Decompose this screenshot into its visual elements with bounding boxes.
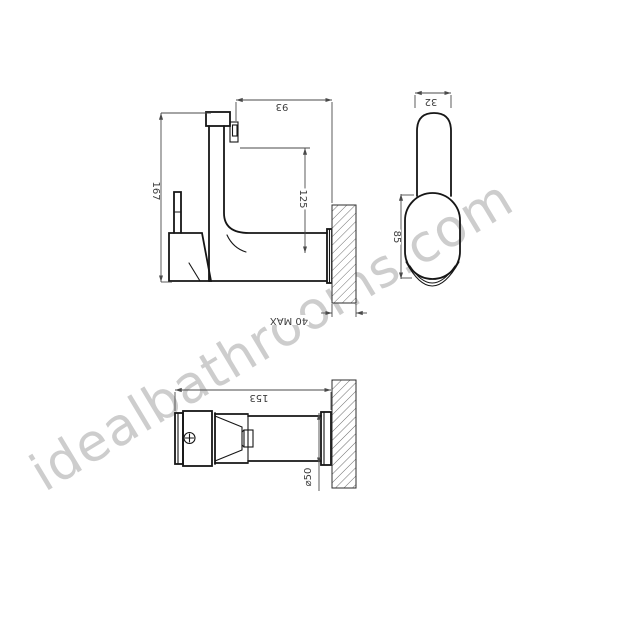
plan-view-faucet-outline — [175, 411, 331, 466]
dim-max-wall-thickness: 40 MAX — [269, 315, 309, 325]
wall-section-hatch-plan — [332, 380, 356, 488]
dim-spout-projection: 93 — [275, 101, 290, 111]
handle-end-cap — [175, 413, 183, 464]
dim-top-to-spout-axis: 125 — [297, 188, 307, 209]
dim-overall-height: 167 — [150, 180, 160, 201]
front-view-dimension-lines — [401, 93, 451, 279]
technical-drawing-canvas: idealbathrooms.com — [0, 0, 640, 640]
wall-section-hatch — [332, 205, 356, 303]
fixing-screw — [184, 433, 195, 444]
dim-overall-length: 153 — [248, 392, 269, 402]
front-view — [401, 93, 460, 286]
handle-front — [417, 113, 451, 196]
dim-body-height: 85 — [391, 230, 401, 245]
dim-flange-diameter: ⌀50 — [304, 467, 314, 488]
wall-flange-plan — [321, 412, 331, 465]
cartridge-cap — [206, 112, 230, 126]
faucet-dimension-drawing — [0, 0, 640, 640]
body-front — [405, 193, 460, 279]
dim-handle-width: 32 — [424, 96, 439, 106]
side-view — [161, 100, 367, 317]
front-view-faucet-outline — [405, 113, 460, 286]
lever-handle — [169, 192, 211, 281]
